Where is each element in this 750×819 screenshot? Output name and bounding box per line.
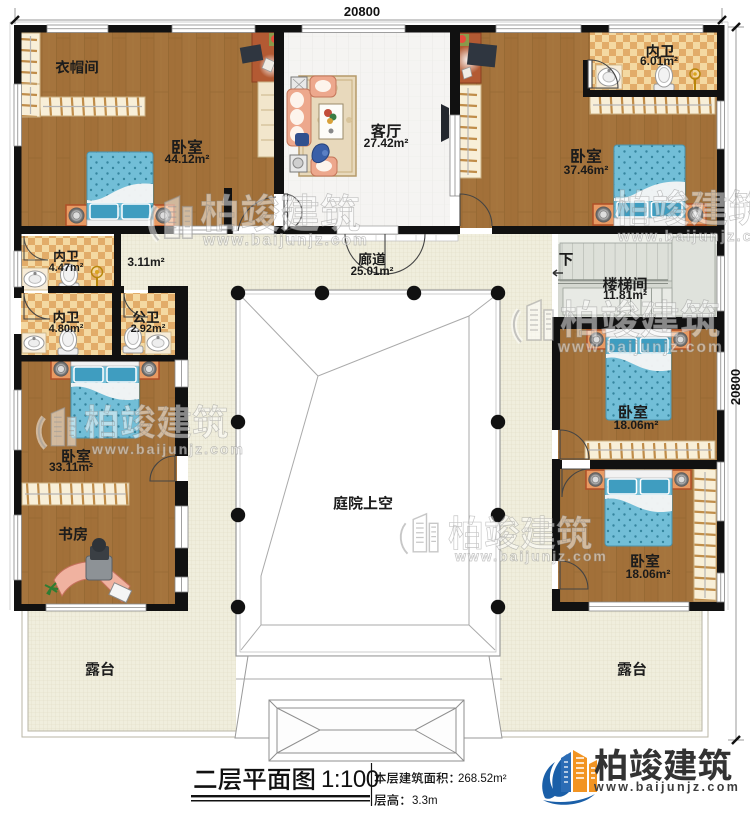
svg-text:44.12m²: 44.12m²	[165, 152, 210, 166]
svg-text:www.baijunjz.com: www.baijunjz.com	[202, 232, 369, 249]
svg-text:37.46m²: 37.46m²	[564, 163, 609, 177]
svg-text:4.80m²: 4.80m²	[49, 323, 84, 335]
svg-text:20800: 20800	[728, 369, 743, 405]
svg-text:3.11m²: 3.11m²	[127, 255, 164, 269]
svg-text:www.baijunjz.com: www.baijunjz.com	[593, 780, 740, 794]
svg-text:27.42m²: 27.42m²	[364, 136, 409, 150]
svg-text:18.06m²: 18.06m²	[626, 567, 671, 581]
svg-text:www.baijunjz.com: www.baijunjz.com	[91, 441, 245, 457]
svg-text:www.baijunjz.com: www.baijunjz.com	[617, 228, 750, 245]
svg-text:1:100: 1:100	[321, 766, 379, 793]
svg-text:4.47m²: 4.47m²	[49, 262, 84, 274]
svg-text:33.11m²: 33.11m²	[49, 460, 93, 474]
svg-text:3.3m: 3.3m	[412, 795, 438, 807]
svg-text:www.baijunjz.com: www.baijunjz.com	[557, 339, 724, 356]
svg-text:6.01m²: 6.01m²	[640, 54, 678, 68]
svg-text:20800: 20800	[344, 4, 380, 19]
svg-text:25.01m²: 25.01m²	[351, 266, 394, 278]
svg-text:2.92m²: 2.92m²	[131, 323, 166, 335]
svg-text:www.baijunjz.com: www.baijunjz.com	[454, 548, 608, 564]
svg-text:18.06m²: 18.06m²	[614, 418, 659, 432]
svg-text:268.52m²: 268.52m²	[458, 773, 507, 785]
